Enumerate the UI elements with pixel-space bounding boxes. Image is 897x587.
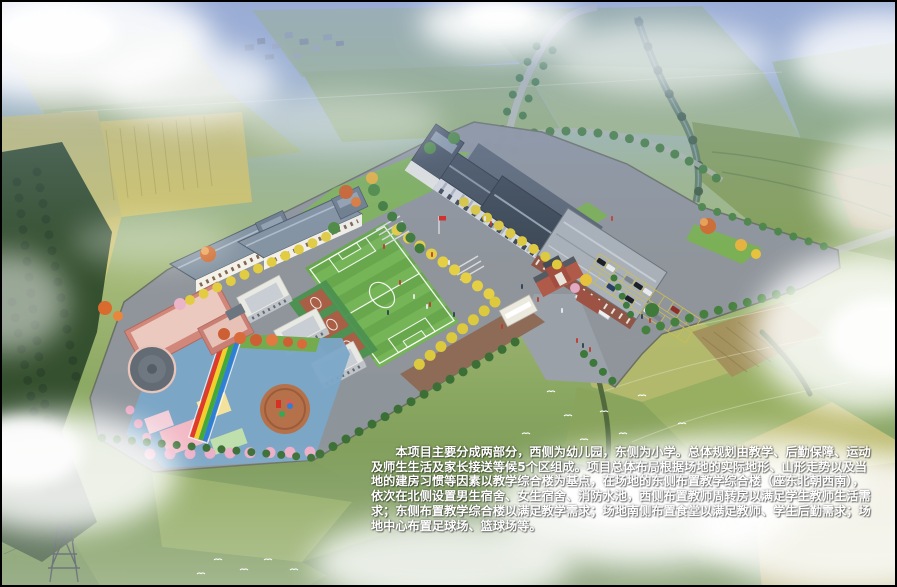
- project-description: 本项目主要分成两部分，西侧为幼儿园，东侧为小学。总体规划由教学、后勤保障、运动 …: [371, 445, 897, 533]
- caption-line: 地的建房习惯等因素以教学综合楼为基点，在场地的东侧布置教学综合楼（座东北朝西南）…: [371, 474, 897, 489]
- caption-line: 依次在北侧设置男生宿舍、女生宿舍、消防水池，西侧布置教师周转房以满足学生教师生活…: [371, 489, 897, 504]
- caption-line: 本项目主要分成两部分，西侧为幼儿园，东侧为小学。总体规划由教学、后勤保障、运动: [371, 445, 897, 460]
- caption-line: 求；东侧布置教学综合楼以满足教学需求；场地南侧布置食堂以满足教师、学生后勤需求；…: [371, 504, 897, 519]
- rendered-slide: 本项目主要分成两部分，西侧为幼儿园，东侧为小学。总体规划由教学、后勤保障、运动 …: [0, 0, 897, 587]
- play-equipment-circle: [260, 384, 310, 434]
- kindergarten-round-hall: [129, 346, 175, 392]
- caption-line: 地中心布置足球场、篮球场等。: [371, 519, 897, 534]
- caption-line: 及师生生活及家长接送等候5个区组成。项目总体布局根据场地的实际地形、山形走势以及…: [371, 460, 897, 475]
